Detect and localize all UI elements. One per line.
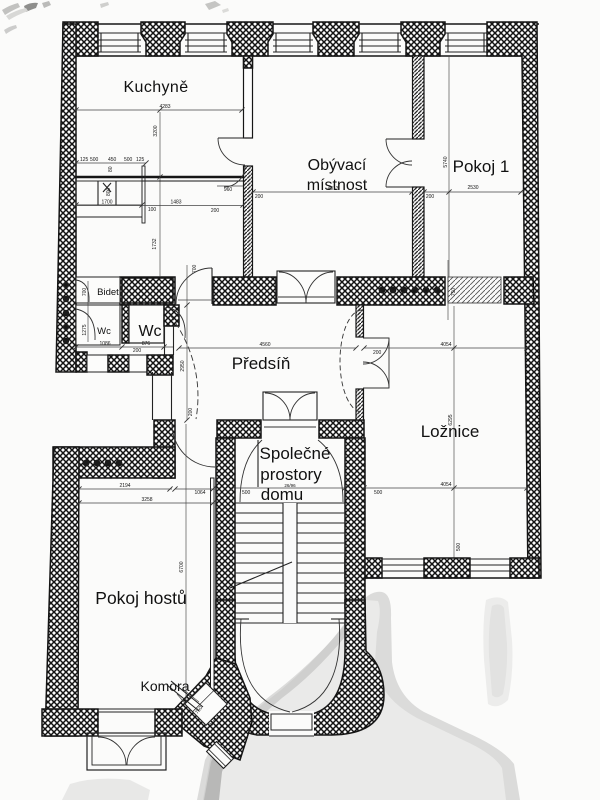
- svg-text:100: 100: [148, 207, 157, 213]
- svg-text:2950: 2950: [180, 360, 186, 371]
- svg-text:4560: 4560: [259, 342, 270, 348]
- svg-text:4054: 4054: [440, 482, 451, 488]
- svg-text:Předsíň: Předsíň: [232, 354, 291, 373]
- svg-text:3258: 3258: [141, 497, 152, 503]
- svg-text:876: 876: [142, 341, 151, 347]
- svg-text:Pokoj hostů: Pokoj hostů: [95, 588, 186, 608]
- svg-text:4054: 4054: [440, 342, 451, 348]
- svg-text:125: 125: [136, 157, 145, 163]
- svg-text:500: 500: [124, 157, 133, 163]
- svg-text:1275: 1275: [82, 324, 88, 335]
- svg-text:200: 200: [255, 194, 264, 200]
- svg-text:200: 200: [426, 194, 435, 200]
- svg-text:1700: 1700: [101, 200, 112, 206]
- svg-text:Pokoj 1: Pokoj 1: [453, 157, 510, 176]
- svg-text:Wc: Wc: [97, 326, 111, 337]
- svg-text:5740: 5740: [443, 156, 449, 167]
- svg-text:26/96: 26/96: [284, 483, 296, 488]
- svg-text:3200: 3200: [153, 125, 159, 136]
- svg-text:960: 960: [224, 187, 233, 193]
- svg-text:200: 200: [188, 408, 194, 417]
- svg-text:200: 200: [133, 348, 142, 354]
- svg-text:500: 500: [374, 490, 383, 496]
- svg-text:4013: 4013: [327, 186, 338, 192]
- svg-text:Wc: Wc: [138, 323, 161, 340]
- svg-text:700: 700: [192, 264, 198, 273]
- svg-text:700: 700: [82, 288, 88, 297]
- svg-text:2530: 2530: [467, 185, 478, 191]
- svg-text:450: 450: [108, 157, 117, 163]
- svg-text:1732: 1732: [152, 238, 158, 249]
- svg-text:500: 500: [90, 157, 99, 163]
- svg-text:2194: 2194: [119, 483, 130, 489]
- svg-text:500: 500: [242, 490, 251, 496]
- svg-text:1483: 1483: [170, 200, 181, 206]
- svg-text:200: 200: [373, 350, 382, 356]
- svg-text:Společné: Společné: [260, 444, 331, 463]
- svg-text:6700: 6700: [179, 561, 185, 572]
- svg-text:prostory: prostory: [260, 465, 322, 484]
- svg-text:Bidet: Bidet: [97, 287, 119, 298]
- svg-text:80: 80: [108, 166, 114, 172]
- svg-text:Komora: Komora: [140, 678, 189, 694]
- svg-text:Kuchyně: Kuchyně: [123, 79, 188, 96]
- svg-text:Obývací: Obývací: [308, 157, 367, 174]
- svg-text:800: 800: [106, 187, 112, 196]
- svg-text:125: 125: [80, 157, 89, 163]
- svg-text:1064: 1064: [194, 490, 205, 496]
- svg-text:200: 200: [211, 208, 220, 214]
- svg-text:500: 500: [456, 543, 462, 552]
- svg-text:domu: domu: [261, 485, 304, 504]
- svg-text:1086: 1086: [99, 341, 110, 347]
- svg-text:750: 750: [451, 288, 457, 297]
- svg-text:6295: 6295: [448, 414, 454, 425]
